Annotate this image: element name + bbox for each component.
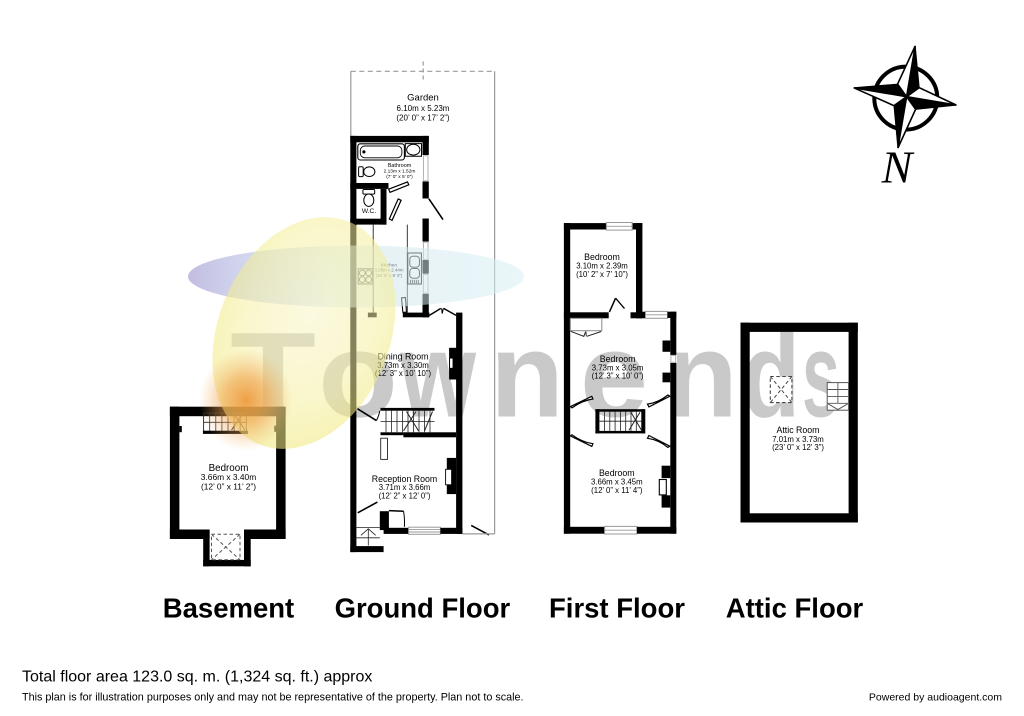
- svg-text:W.C.: W.C.: [362, 208, 376, 215]
- svg-text:Ground Floor: Ground Floor: [335, 593, 511, 624]
- svg-text:First Floor: First Floor: [549, 593, 685, 624]
- svg-text:(12’ 3” x 10’ 0”): (12’ 3” x 10’ 0”): [592, 372, 644, 381]
- svg-text:Bedroom: Bedroom: [599, 468, 635, 478]
- svg-text:2.13m x 1.52m: 2.13m x 1.52m: [384, 169, 416, 175]
- svg-text:Powered by audioagent.com: Powered by audioagent.com: [869, 692, 1002, 704]
- svg-text:Bedroom: Bedroom: [584, 252, 620, 262]
- svg-text:(20’ 0” x 17’ 2”): (20’ 0” x 17’ 2”): [396, 114, 450, 123]
- svg-text:Garden: Garden: [407, 93, 439, 104]
- svg-text:(12’ 0” x 11’ 4”): (12’ 0” x 11’ 4”): [591, 486, 643, 495]
- svg-text:(12’ 3” x 10’ 10”): (12’ 3” x 10’ 10”): [375, 369, 432, 378]
- svg-text:(12’ 0” x 11’ 2”): (12’ 0” x 11’ 2”): [201, 481, 256, 491]
- svg-text:Bathroom: Bathroom: [388, 163, 412, 169]
- svg-text:n: n: [490, 307, 564, 443]
- svg-text:6.10m x 5.23m: 6.10m x 5.23m: [397, 104, 450, 113]
- svg-text:(12’ 2” x 12’ 0”): (12’ 2” x 12’ 0”): [379, 491, 431, 500]
- svg-text:(23’ 0” x 12’ 3”): (23’ 0” x 12’ 3”): [772, 443, 824, 452]
- svg-text:Total floor area 123.0 sq. m.: Total floor area 123.0 sq. m. (1,324 sq.…: [22, 669, 372, 686]
- svg-text:Attic Room: Attic Room: [776, 425, 819, 435]
- svg-text:Basement: Basement: [163, 593, 294, 624]
- svg-text:(7’ 0” x 5’ 0”): (7’ 0” x 5’ 0”): [386, 174, 413, 180]
- svg-text:(10’ 2” x 7’ 10”): (10’ 2” x 7’ 10”): [576, 270, 628, 279]
- svg-text:Attic Floor: Attic Floor: [726, 593, 864, 624]
- svg-text:This plan is for illustration: This plan is for illustration purposes o…: [22, 692, 524, 704]
- svg-text:N: N: [881, 142, 915, 193]
